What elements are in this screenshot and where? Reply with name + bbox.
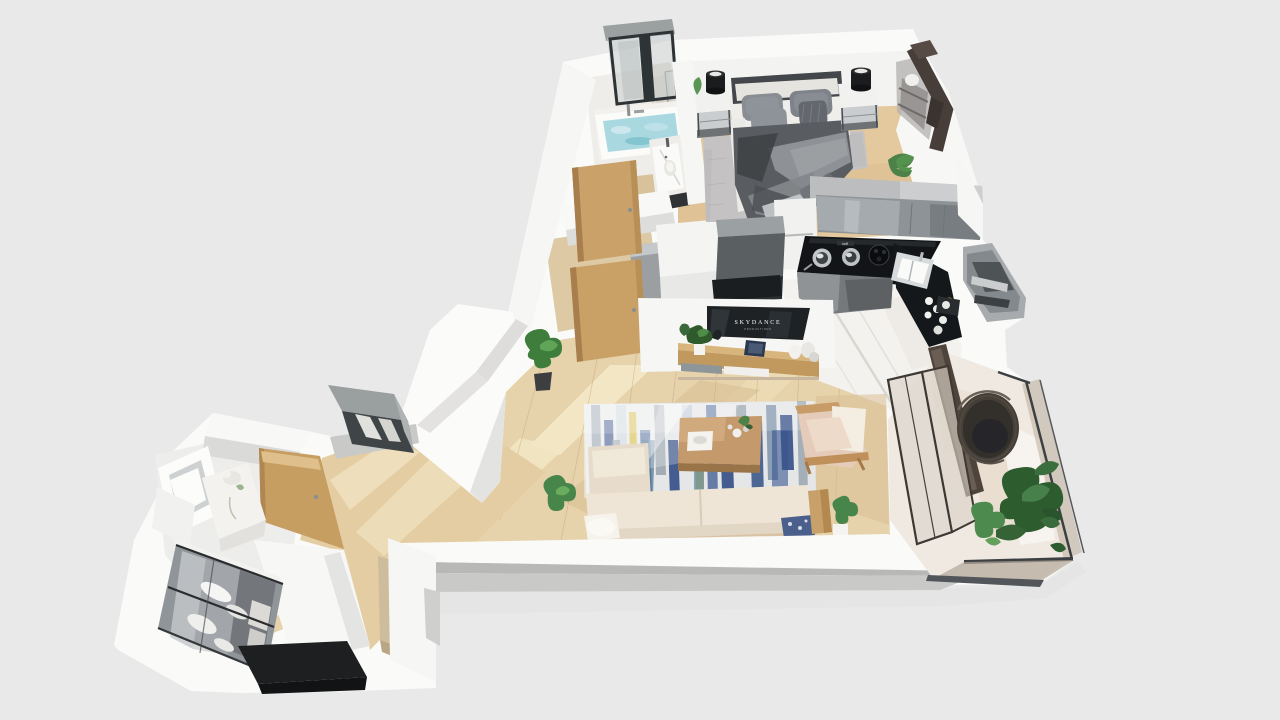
svg-text:SKYDANCE: SKYDANCE <box>734 320 781 326</box>
svg-text:neff: neff <box>842 242 848 246</box>
svg-text:PRODUCTIONS: PRODUCTIONS <box>744 328 771 331</box>
